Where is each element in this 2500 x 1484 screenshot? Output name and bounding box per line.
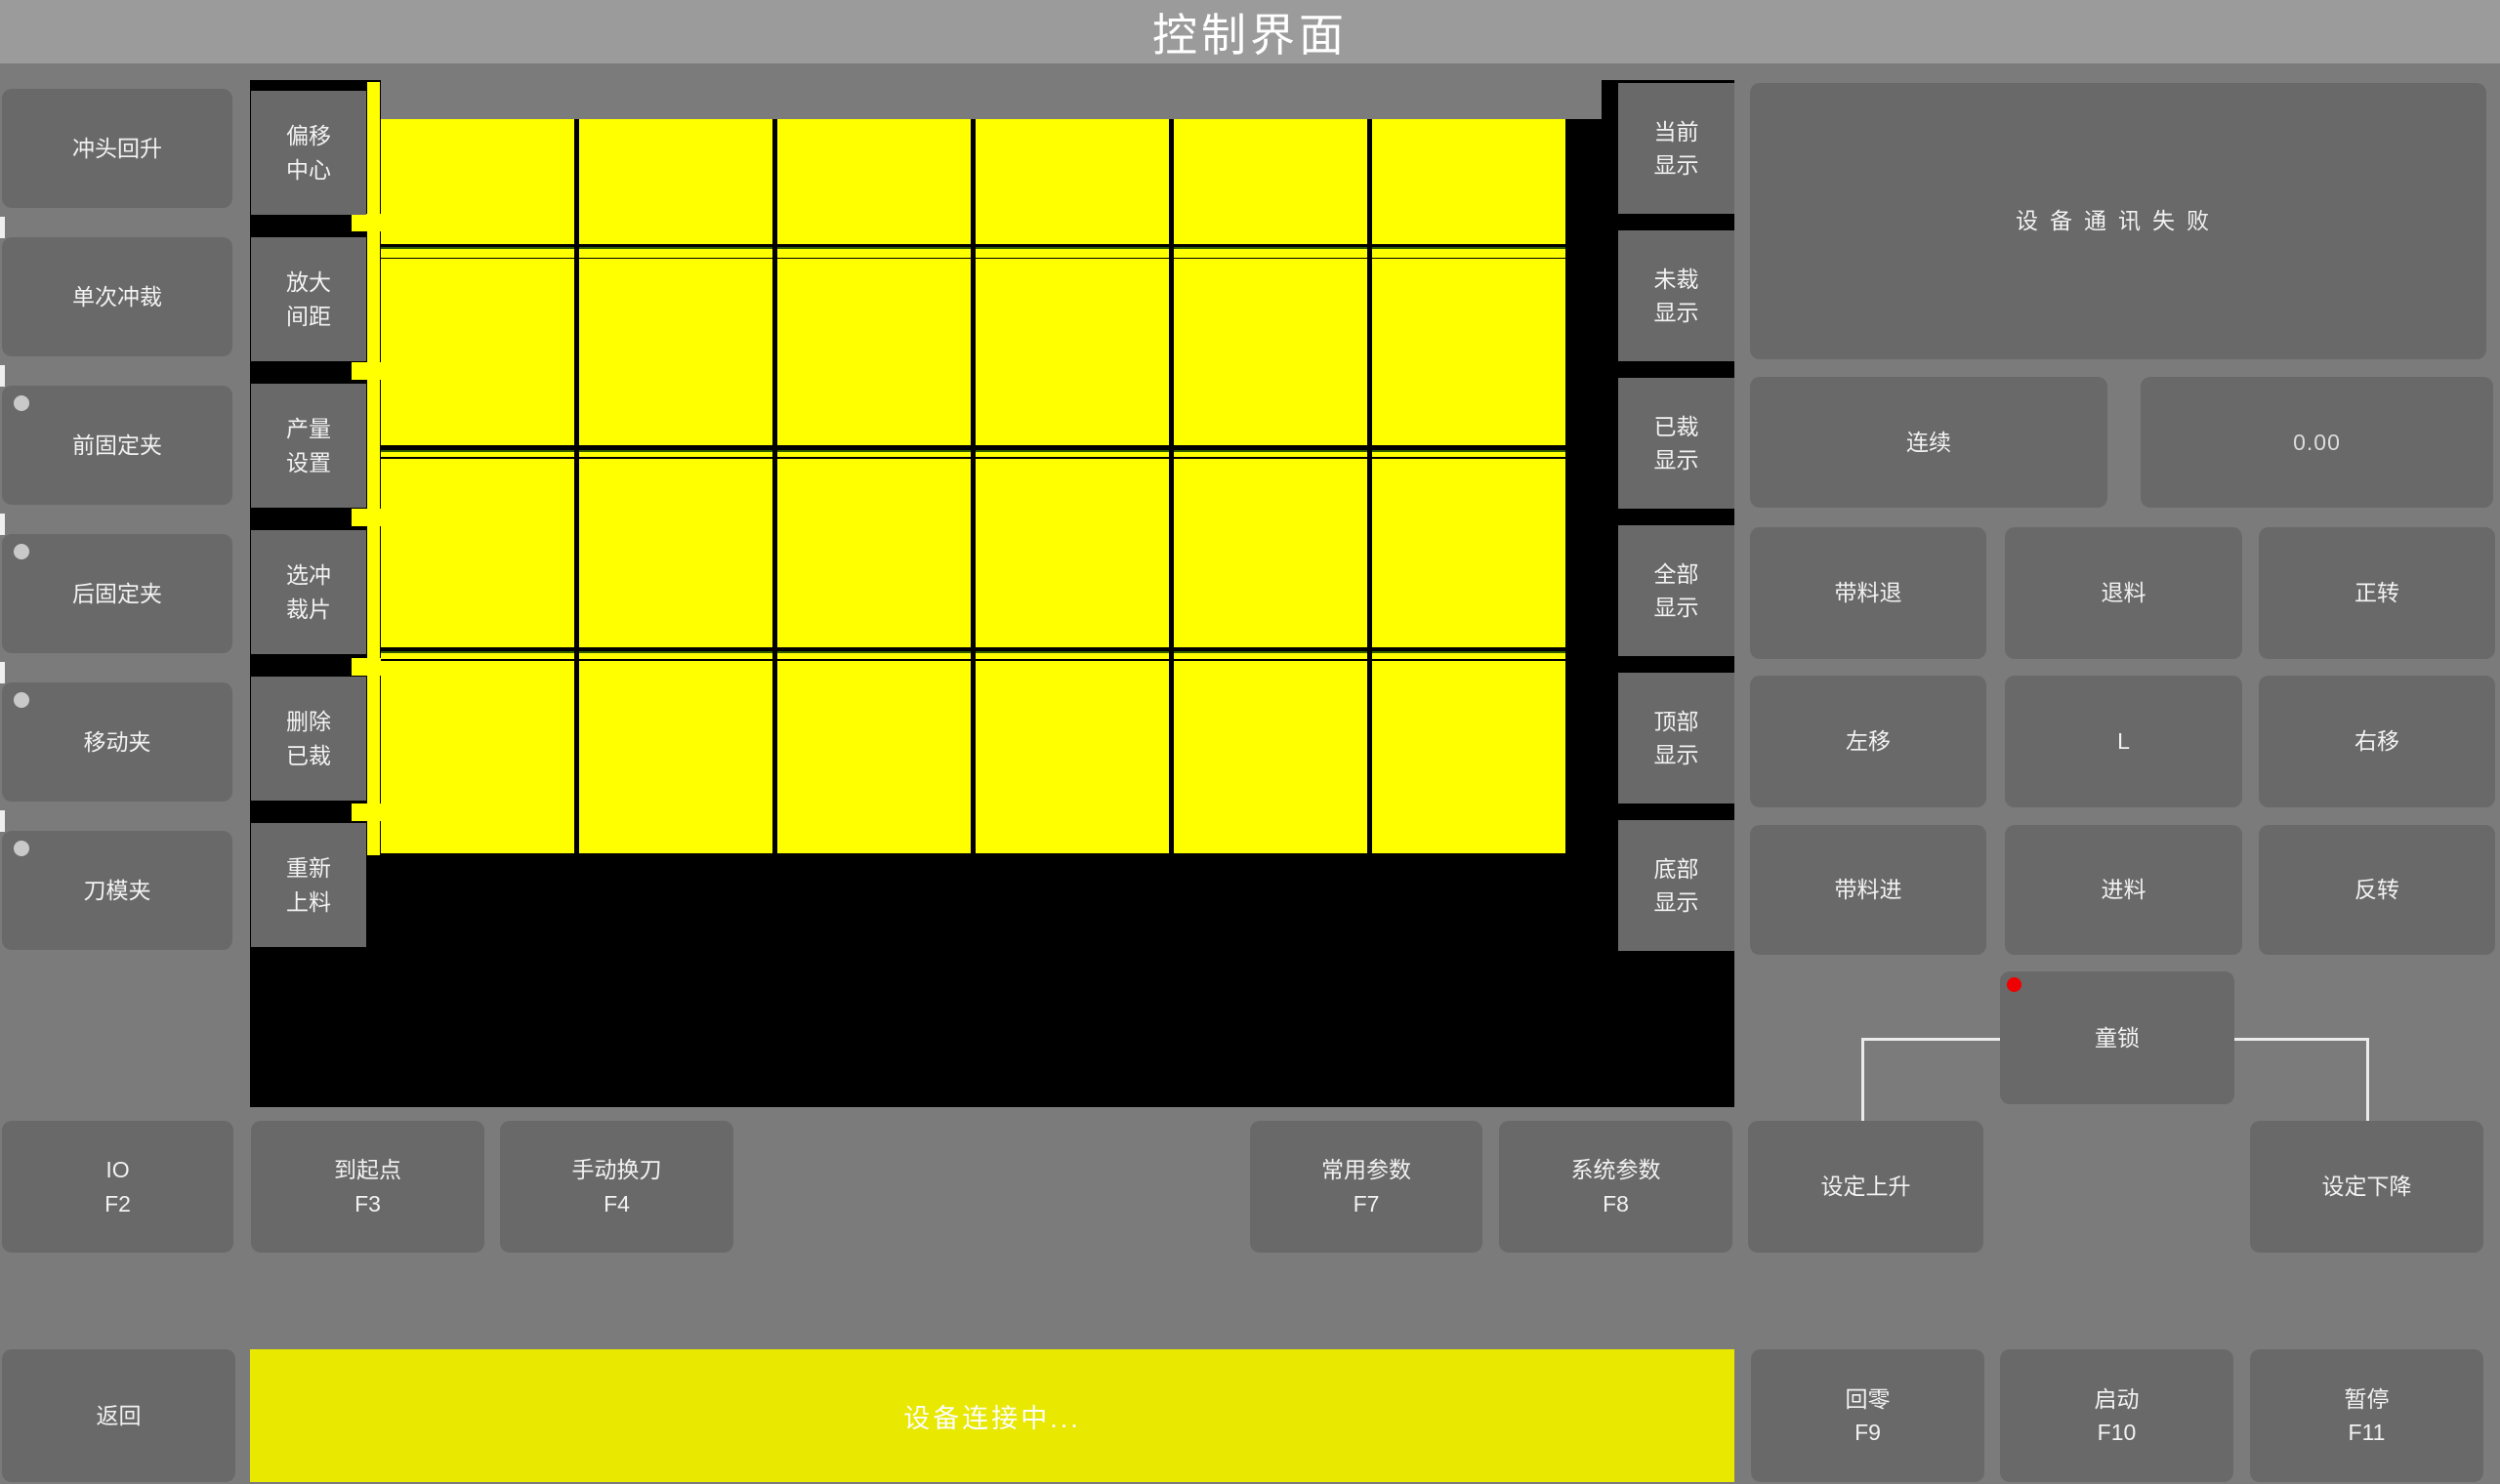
sheet-piece[interactable] (579, 459, 772, 647)
left-panel-button[interactable]: 前固定夹 (2, 386, 232, 505)
sheet-piece[interactable] (1174, 259, 1367, 445)
tool-panel-button[interactable]: 产量 设置 (251, 384, 366, 508)
left-panel-button[interactable]: 刀模夹 (2, 831, 232, 950)
edge-indicator-tick (0, 810, 5, 832)
wire-line-right (2366, 1038, 2369, 1121)
jog-grid-button[interactable]: 带料退 (1750, 527, 1986, 659)
jog-grid-button[interactable]: 进料 (2005, 825, 2242, 955)
sheet-piece[interactable] (1174, 459, 1367, 647)
function-key-button[interactable]: 手动换刀 F4 (500, 1121, 733, 1253)
sheet-piece[interactable] (1174, 119, 1367, 244)
continuous-mode-label: 连续 (1906, 426, 1951, 460)
sheet-piece[interactable] (777, 259, 971, 445)
jog-grid-button[interactable]: 右移 (2259, 676, 2495, 807)
sheet-piece[interactable] (1372, 119, 1565, 244)
sheet-piece[interactable] (381, 459, 574, 647)
sheet-piece[interactable] (381, 259, 574, 445)
sheet-piece[interactable] (777, 459, 971, 647)
function-key-button[interactable]: 设定下降 (2250, 1121, 2483, 1253)
value-display-text: 0.00 (2293, 426, 2341, 460)
value-display[interactable]: 0.00 (2141, 377, 2493, 508)
wire-line-left (1861, 1038, 1864, 1121)
jog-grid-button[interactable]: L (2005, 676, 2242, 807)
display-filter-button[interactable]: 顶部 显示 (1618, 673, 1734, 804)
left-panel-button[interactable]: 单次冲裁 (2, 237, 232, 356)
child-lock-indicator-dot (2007, 977, 2021, 992)
sheet-piece[interactable] (1372, 459, 1565, 647)
tool-panel-button[interactable]: 放大 间距 (251, 237, 366, 361)
left-panel-button[interactable]: 后固定夹 (2, 534, 232, 653)
display-filter-button[interactable]: 未裁 显示 (1618, 230, 1734, 361)
cut-strip (777, 247, 971, 258)
sheet-piece[interactable] (777, 119, 971, 244)
status-message-box: 设备通讯失败 (1750, 83, 2486, 359)
status-indicator-dot (14, 544, 29, 559)
jog-grid-button[interactable]: 左移 (1750, 676, 1986, 807)
sheet-piece[interactable] (976, 661, 1169, 853)
cut-strip (1372, 247, 1565, 258)
cut-strip (976, 450, 1169, 457)
sheet-piece[interactable] (976, 119, 1169, 244)
canvas-top-cover (381, 80, 1602, 119)
edge-indicator-tick (0, 514, 5, 535)
function-key-button[interactable]: 设定上升 (1748, 1121, 1983, 1253)
cut-strip (777, 651, 971, 659)
sheet-piece[interactable] (1372, 661, 1565, 853)
cut-strip (1174, 450, 1367, 457)
jog-grid-button[interactable]: 正转 (2259, 527, 2495, 659)
child-lock-button[interactable]: 童锁 (2000, 971, 2234, 1104)
status-indicator-dot (14, 692, 29, 708)
display-filter-button[interactable]: 全部 显示 (1618, 525, 1734, 656)
left-panel-button[interactable]: 冲头回升 (2, 89, 232, 208)
child-lock-label: 童锁 (2095, 1021, 2140, 1055)
sheet-piece[interactable] (777, 661, 971, 853)
jog-grid-button[interactable]: 反转 (2259, 825, 2495, 955)
sheet-piece[interactable] (579, 259, 772, 445)
bottom-action-button[interactable]: 回零 F9 (1751, 1349, 1984, 1482)
connection-status-text: 设备连接中... (903, 1397, 1081, 1435)
cut-strip (976, 247, 1169, 258)
cut-strip (1372, 651, 1565, 659)
function-key-button[interactable]: IO F2 (2, 1121, 233, 1253)
function-key-button[interactable]: 系统参数 F8 (1499, 1121, 1732, 1253)
back-button[interactable]: 返回 (2, 1349, 235, 1482)
sheet-piece[interactable] (381, 119, 574, 244)
edge-indicator-tick (0, 662, 5, 683)
page-title: 控制界面 (1152, 0, 1348, 64)
tool-panel-button[interactable]: 选冲 裁片 (251, 530, 366, 654)
status-indicator-dot (14, 395, 29, 411)
cut-strip (579, 450, 772, 457)
sheet-piece[interactable] (579, 661, 772, 853)
sheet-piece[interactable] (1372, 259, 1565, 445)
cut-strip (381, 247, 574, 258)
status-indicator-dot (14, 841, 29, 856)
cut-strip (579, 247, 772, 258)
sheet-piece[interactable] (976, 259, 1169, 445)
cut-strip (579, 651, 772, 659)
sheet-canvas (250, 80, 1734, 1107)
sheet-piece[interactable] (976, 459, 1169, 647)
cut-strip (976, 651, 1169, 659)
connection-status-bar: 设备连接中... (250, 1349, 1734, 1482)
continuous-mode-button[interactable]: 连续 (1750, 377, 2107, 508)
jog-grid-button[interactable]: 带料进 (1750, 825, 1986, 955)
display-filter-button[interactable]: 当前 显示 (1618, 83, 1734, 214)
sheet-piece[interactable] (1174, 661, 1367, 853)
edge-indicator-tick (0, 365, 5, 387)
function-key-button[interactable]: 常用参数 F7 (1250, 1121, 1482, 1253)
sheet-piece[interactable] (579, 119, 772, 244)
cut-strip (777, 450, 971, 457)
material-edge-strip (367, 82, 380, 855)
edge-indicator-tick (0, 217, 5, 238)
tool-panel-button[interactable]: 重新 上料 (251, 823, 366, 947)
status-message-text: 设备通讯失败 (2016, 204, 2221, 238)
sheet-piece[interactable] (381, 661, 574, 853)
cut-strip (1372, 450, 1565, 457)
cut-strip (1174, 651, 1367, 659)
display-filter-button[interactable]: 已裁 显示 (1618, 378, 1734, 509)
back-button-label: 返回 (97, 1399, 142, 1433)
cut-strip (381, 651, 574, 659)
jog-grid-button[interactable]: 退料 (2005, 527, 2242, 659)
bottom-action-button[interactable]: 启动 F10 (2000, 1349, 2233, 1482)
display-filter-button[interactable]: 底部 显示 (1618, 820, 1734, 951)
left-panel-button[interactable]: 移动夹 (2, 682, 232, 802)
bottom-action-button[interactable]: 暂停 F11 (2250, 1349, 2483, 1482)
tool-panel-button[interactable]: 删除 已裁 (251, 677, 366, 801)
cut-strip (1174, 247, 1367, 258)
cut-strip (381, 450, 574, 457)
function-key-button[interactable]: 到起点 F3 (251, 1121, 484, 1253)
title-bar: 控制界面 (0, 0, 2500, 63)
tool-panel-button[interactable]: 偏移 中心 (251, 91, 366, 215)
